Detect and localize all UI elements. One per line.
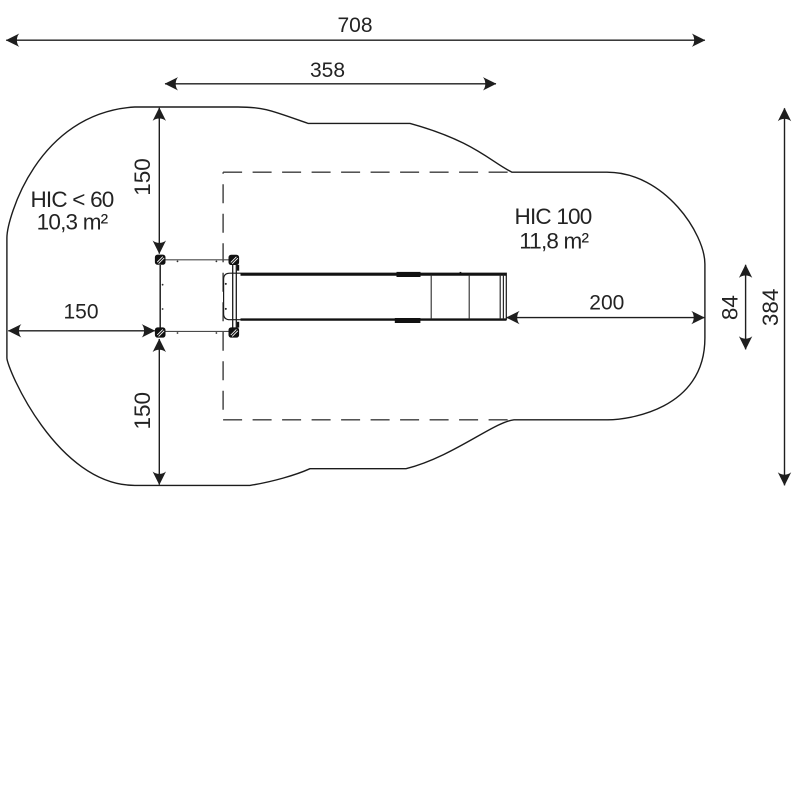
svg-text:384: 384: [758, 289, 783, 327]
svg-text:HIC < 60: HIC < 60: [30, 187, 113, 212]
svg-text:708: 708: [337, 14, 372, 37]
svg-text:150: 150: [130, 392, 155, 430]
svg-text:150: 150: [130, 158, 155, 196]
svg-text:84: 84: [718, 295, 743, 320]
svg-text:200: 200: [589, 292, 624, 315]
svg-text:358: 358: [310, 59, 345, 82]
svg-text:HIC 100: HIC 100: [515, 204, 592, 229]
svg-text:11,8 m²: 11,8 m²: [519, 229, 589, 254]
svg-text:10,3 m²: 10,3 m²: [37, 210, 109, 235]
svg-text:150: 150: [63, 301, 98, 324]
